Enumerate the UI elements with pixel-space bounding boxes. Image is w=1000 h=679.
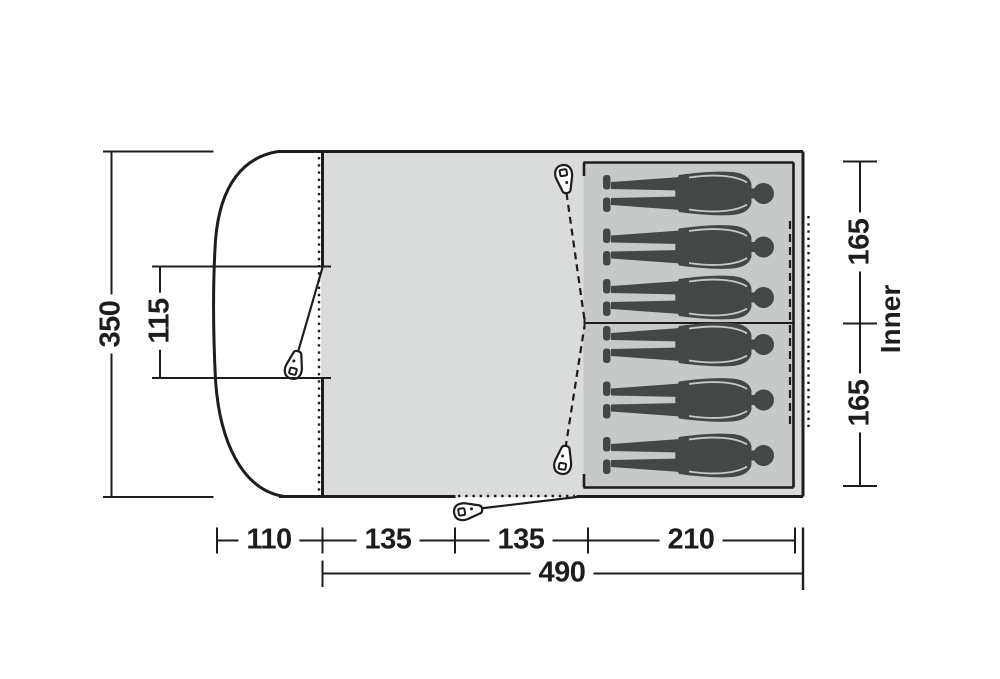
dimension-label-115: 115: [145, 292, 176, 349]
dimension-label-135-left: 135: [357, 525, 420, 556]
dimension-label-350: 350: [96, 295, 127, 354]
dimension-label-165-top: 165: [845, 213, 876, 272]
tent-floorplan-diagram: 350 115 165 165 Inner 110 135 135 210 49…: [0, 0, 1000, 679]
dimension-label-210: 210: [660, 525, 723, 556]
dimension-label-490: 490: [531, 558, 594, 589]
dimension-label-110: 110: [238, 525, 299, 556]
zipper-pull-icon: [453, 501, 483, 522]
zipper-pull-icon: [283, 349, 306, 380]
dimension-165-inner: [843, 162, 877, 487]
dimension-115: [152, 267, 331, 379]
bottom-door-flap: [453, 497, 577, 521]
inner-tent-label: Inner: [876, 279, 906, 359]
dimension-label-135-right: 135: [490, 525, 553, 556]
dimension-label-165-bottom: 165: [845, 374, 876, 433]
left-door-flap: [283, 268, 323, 381]
